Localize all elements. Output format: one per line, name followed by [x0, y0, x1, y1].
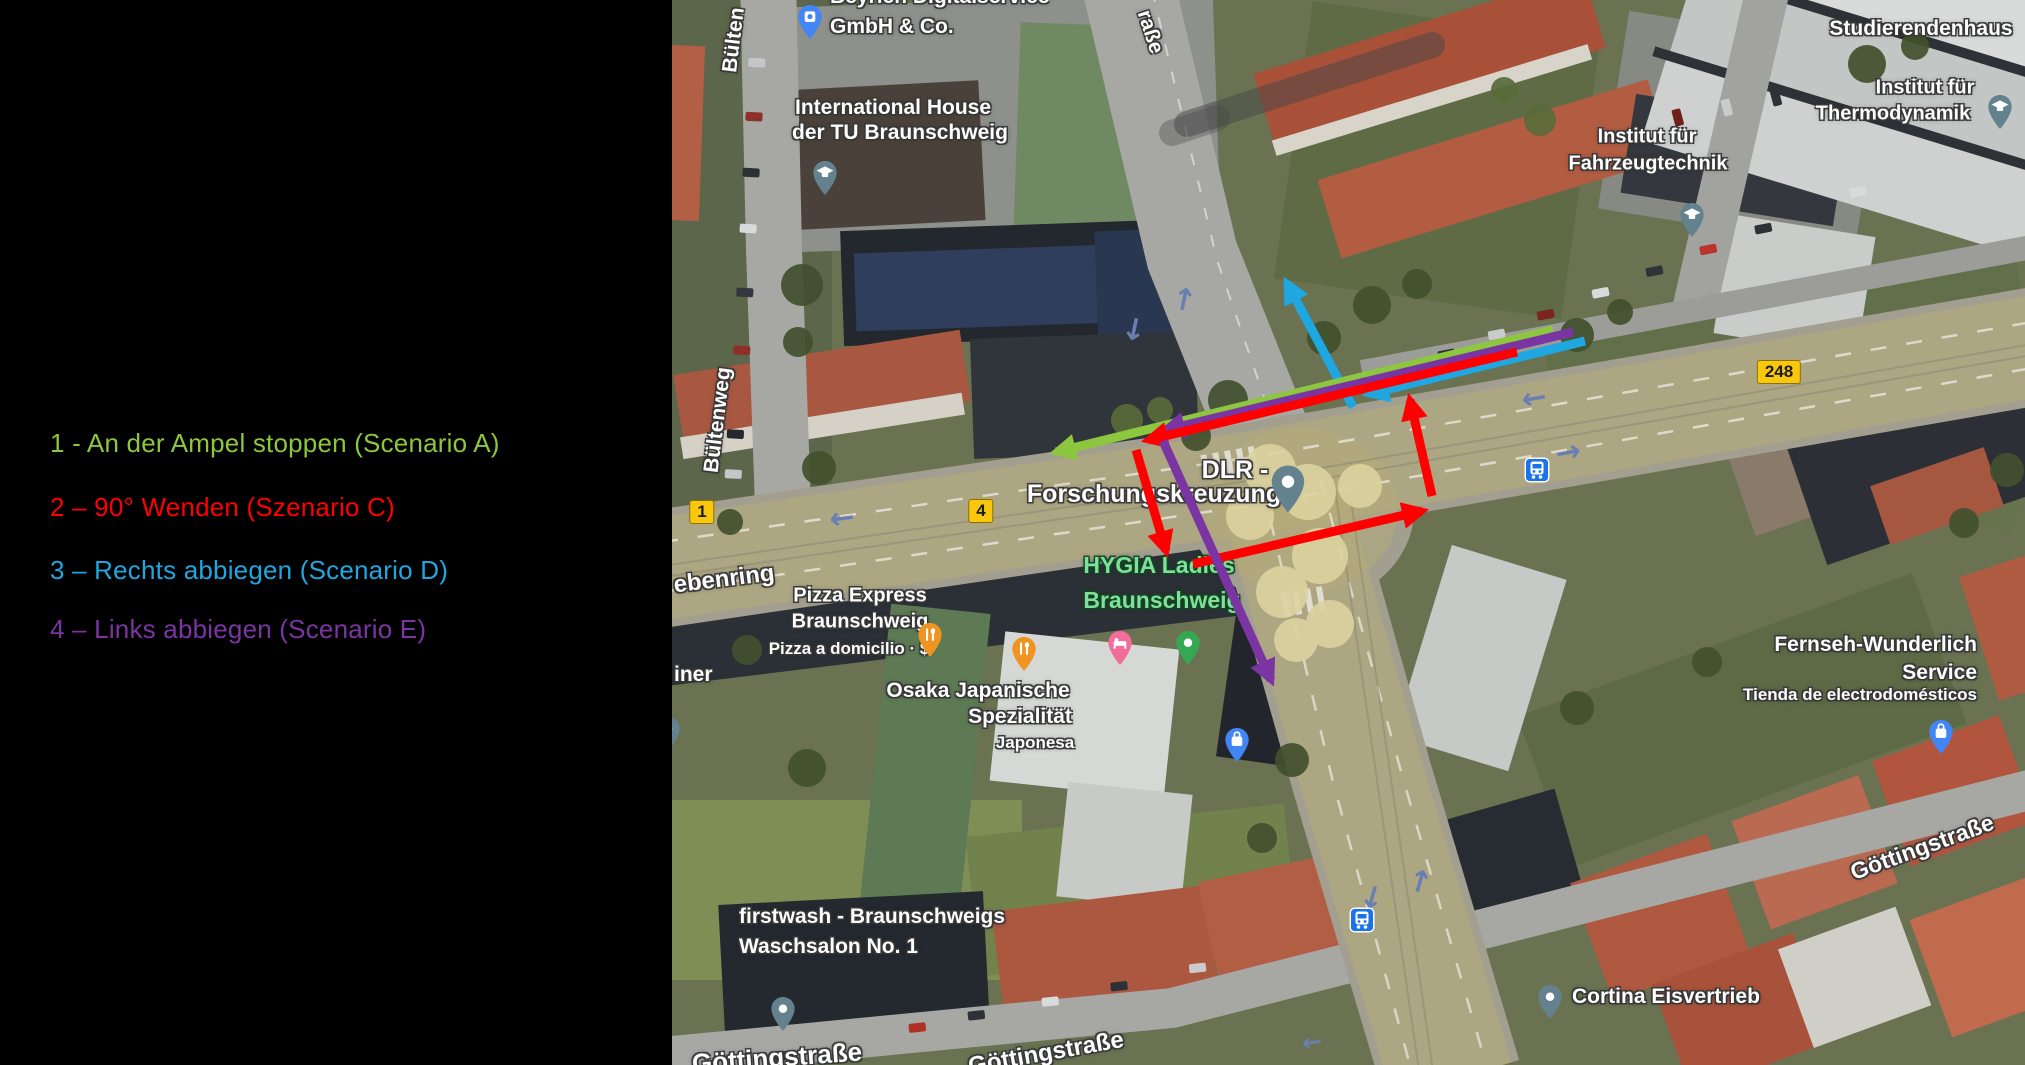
- poi-label-international-house-line2: der TU Braunschweig: [792, 122, 1008, 144]
- poi-label-fahrzeugtechnik-line2: Fahrzeugtechnik: [1569, 154, 1728, 175]
- poi-label-dlr-line2: Forschungskreuzung: [1027, 481, 1281, 507]
- poi-label-studierendenhaus: Studierendenhaus: [1829, 18, 2012, 40]
- legend-item-stop: 1 - An der Ampel stoppen (Scenario A): [50, 428, 500, 459]
- poi-label-fernseh-line1: Fernseh-Wunderlich: [1774, 634, 1977, 656]
- poi-label-osaka-line1: Osaka Japanische: [886, 680, 1069, 702]
- poi-label-international-house-line1: International House: [795, 97, 991, 119]
- bus-stop-icon[interactable]: [1525, 458, 1550, 483]
- poi-label-hygia-line1: HYGIA Ladies: [1083, 553, 1234, 577]
- poi-label-iner-fragment: iner: [674, 664, 713, 686]
- poi-label-osaka-line3: Japonesa: [996, 734, 1074, 752]
- poi-label-fernseh-line3: Tienda de electrodomésticos: [1743, 686, 1977, 704]
- poi-label-beyrich-line1: Beyrich Digitalservice: [830, 0, 1049, 8]
- satellite-map[interactable]: ↓ ↑ ← → ← ↓ ↑ ←: [672, 0, 2025, 1065]
- poi-label-pizza-express-line2: Braunschweig: [792, 612, 929, 633]
- poi-label-pizza-express-line3: Pizza a domicilio · $: [769, 640, 930, 658]
- route-badge-1: 1: [689, 500, 714, 524]
- poi-label-firstwash-line1: firstwash - Braunschweigs: [739, 906, 1005, 928]
- poi-pin-restaurant-icon[interactable]: [917, 622, 943, 658]
- poi-pin-green-icon[interactable]: [1175, 630, 1201, 666]
- poi-pin-gray-icon[interactable]: [1537, 984, 1563, 1020]
- poi-pin-education-icon[interactable]: [1679, 202, 1705, 238]
- poi-label-thermodynamik-line2: Thermodynamik: [1816, 104, 1970, 125]
- poi-label-thermodynamik-line1: Institut für: [1876, 78, 1975, 99]
- poi-pin-restaurant-icon[interactable]: [1011, 636, 1037, 672]
- svg-text:←: ←: [827, 499, 857, 537]
- poi-label-beyrich-line2: GmbH & Co.: [830, 16, 954, 38]
- poi-label-pizza-express-line1: Pizza Express: [793, 586, 926, 607]
- poi-pin-gray-icon[interactable]: [672, 716, 681, 752]
- poi-pin-store-icon[interactable]: [1224, 727, 1250, 763]
- poi-pin-hotel-icon[interactable]: [1107, 630, 1133, 666]
- legend-item-left-turn: 4 – Links abbiegen (Scenario E): [50, 614, 426, 645]
- poi-pin-beyrich-icon[interactable]: [797, 4, 823, 40]
- poi-pin-store-icon[interactable]: [1928, 719, 1954, 755]
- poi-pin-education-icon[interactable]: [1987, 94, 2013, 130]
- legend-item-uturn: 2 – 90° Wenden (Szenario C): [50, 492, 395, 523]
- poi-label-firstwash-line2: Waschsalon No. 1: [739, 936, 918, 958]
- poi-label-osaka-line2: Spezialität: [968, 706, 1072, 728]
- route-badge-4: 4: [968, 499, 993, 523]
- poi-pin-education-icon[interactable]: [812, 160, 838, 196]
- poi-label-cortina: Cortina Eisvertrieb: [1572, 986, 1760, 1008]
- poi-pin-dlr-icon[interactable]: [1270, 464, 1306, 514]
- bus-stop-icon[interactable]: [1350, 908, 1375, 933]
- slide: 1 - An der Ampel stoppen (Scenario A) 2 …: [0, 0, 2025, 1065]
- route-badge-248: 248: [1757, 360, 1801, 384]
- poi-label-fernseh-line2: Service: [1902, 662, 1977, 684]
- legend-item-right-turn: 3 – Rechts abbiegen (Scenario D): [50, 555, 448, 586]
- poi-pin-gray-icon[interactable]: [770, 996, 796, 1032]
- poi-label-hygia-line2: Braunschweig: [1083, 588, 1240, 612]
- poi-label-fahrzeugtechnik-line1: Institut für: [1598, 127, 1697, 148]
